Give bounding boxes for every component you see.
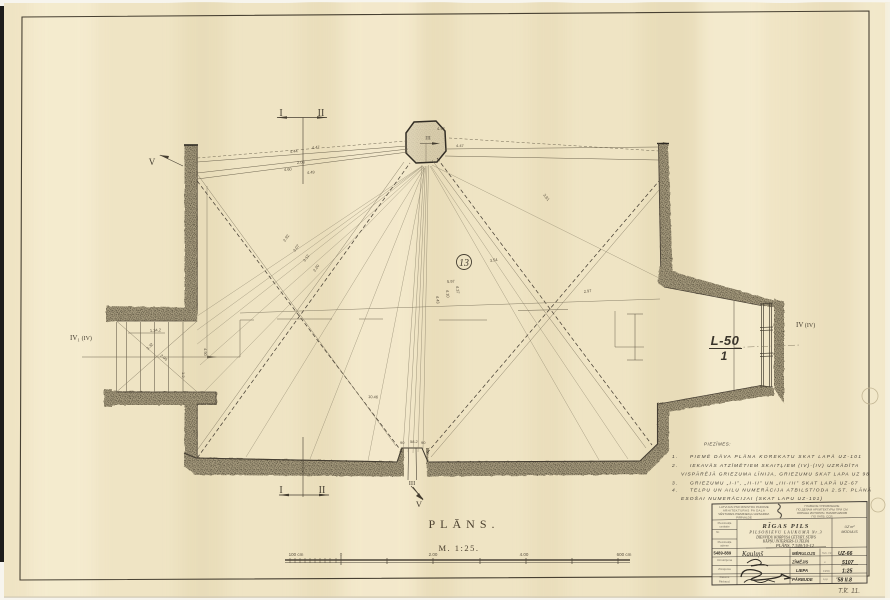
svg-text:4.49: 4.49 [307, 169, 316, 175]
svg-text:1.: 1. [672, 454, 678, 460]
svg-text:4.44: 4.44 [290, 148, 299, 154]
svg-text:uzskaite: uzskaite [719, 525, 730, 529]
svg-text:4.47: 4.47 [456, 143, 465, 148]
svg-text:M. 1:25.: M. 1:25. [438, 543, 479, 553]
svg-text:2.00: 2.00 [429, 552, 438, 557]
svg-text:58.2: 58.2 [410, 439, 419, 444]
svg-text:4.10: 4.10 [445, 290, 451, 299]
svg-text:’58 II.8: ’58 II.8 [836, 578, 852, 584]
svg-text:1: 1 [721, 349, 728, 363]
svg-text:5.97: 5.97 [447, 279, 456, 284]
svg-text:PĀRVALDE: PĀRVALDE [736, 516, 752, 520]
svg-text:GRIEZUMU „I-I”, „II-II” UN „II: GRIEZUMU „I-I”, „II-II” UN „III-III” SKA… [690, 480, 859, 487]
svg-text:UZ m²: UZ m² [845, 525, 856, 529]
svg-text:V: V [149, 157, 156, 167]
svg-text:MODULIS: MODULIS [841, 530, 858, 534]
svg-text:13: 13 [459, 258, 469, 269]
svg-text:MĒRULOJS: MĒRULOJS [792, 551, 815, 556]
svg-text:Nr.: Nr. [716, 530, 720, 534]
svg-text:Pārbaud.: Pārbaud. [719, 580, 731, 584]
svg-text:III: III [409, 480, 416, 487]
svg-text:L-50: L-50 [711, 333, 740, 348]
svg-text:I: I [279, 485, 282, 496]
svg-text:I: I [279, 108, 282, 119]
svg-text:4.47: 4.47 [312, 144, 321, 150]
svg-text:Teh. Nr: Teh. Nr [822, 551, 832, 555]
svg-text:90: 90 [421, 440, 426, 445]
svg-text:UZ-66: UZ-66 [838, 551, 853, 557]
svg-text:1:25: 1:25 [842, 569, 852, 575]
svg-text:100 cm: 100 cm [289, 552, 304, 557]
svg-text:1959: 1959 [823, 569, 830, 573]
svg-text:4.60: 4.60 [284, 166, 293, 172]
svg-text:V: V [416, 499, 423, 509]
svg-text:ESOŠAI NUMERĀCIJAI (SKAT LAPU: ESOŠAI NUMERĀCIJAI (SKAT LAPU UZ-101) [681, 495, 823, 502]
svg-text:5489-889: 5489-889 [714, 551, 732, 556]
svg-text:2.: 2. [671, 463, 678, 469]
svg-text:1.2: 1.2 [181, 372, 186, 378]
svg-text:Lpp: Lpp [823, 577, 828, 581]
svg-text:Zīmējuma: Zīmējuma [718, 567, 731, 571]
svg-text:VISPĀRĒJĀ GRIEZUMA LĪNIJA, GRI: VISPĀRĒJĀ GRIEZUMA LĪNIJA, GRIEZUMU SKAT… [681, 471, 870, 478]
svg-text:ПО ЛАТВ. ССР: ПО ЛАТВ. ССР [812, 515, 833, 519]
svg-text:PĀRBUDE: PĀRBUDE [792, 577, 813, 582]
svg-text:II: II [319, 485, 326, 496]
svg-text:4.: 4. [672, 488, 678, 494]
svg-text:3.: 3. [672, 481, 678, 487]
svg-text:90: 90 [400, 440, 405, 445]
svg-text:PLĀNS.: PLĀNS. [428, 517, 499, 531]
svg-text:III: III [425, 136, 431, 142]
svg-text:T.k̅. 11.: T.k̅. 11. [838, 588, 860, 595]
svg-text:ZĪMĒJIS: ZĪMĒJIS [791, 560, 808, 565]
svg-text:10.46: 10.46 [368, 394, 379, 400]
svg-text:adrese: adrese [720, 544, 729, 548]
svg-text:4.37: 4.37 [455, 286, 461, 295]
svg-text:IV (IV): IV (IV) [796, 321, 815, 329]
svg-text:II: II [318, 108, 325, 119]
svg-text:Kaulιņš: Kaulιņš [741, 551, 764, 558]
svg-text:4.43: 4.43 [437, 126, 446, 131]
svg-text:2.08: 2.08 [297, 159, 306, 165]
svg-text:v.: v. [824, 560, 826, 564]
svg-text:PILSOŅIEVU LAUKUMĀ Nr.3: PILSOŅIEVU LAUKUMĀ Nr.3 [748, 530, 822, 535]
svg-text:PIEZĪMES:: PIEZĪMES: [704, 442, 731, 447]
svg-text:PIEMĒ DĀVA PLĀNA KOREKATU SKAT: PIEMĒ DĀVA PLĀNA KOREKATU SKAT LAPĀ UZ-1… [690, 453, 862, 460]
svg-text:IEKAVĀS ATZĪMĒTIEM SKAITĻIEM (: IEKAVĀS ATZĪMĒTIEM SKAITĻIEM (IV)-(IV) U… [690, 462, 859, 469]
svg-text:LIEPA: LIEPA [796, 568, 808, 573]
svg-text:4.00: 4.00 [520, 552, 529, 557]
svg-text:Uzmērījuma: Uzmērījuma [717, 558, 733, 562]
svg-text:IV₁ (IV): IV₁ (IV) [70, 334, 92, 342]
svg-text:Datums: Datums [720, 575, 730, 579]
svg-text:TELPU UN AILU NUMERĀCIJA ATBIL: TELPU UN AILU NUMERĀCIJA ATBILST/ODA 2.S… [690, 487, 872, 494]
svg-text:4.43: 4.43 [435, 296, 441, 305]
svg-text:600 cm: 600 cm [617, 552, 632, 557]
svg-text:1.34,2: 1.34,2 [150, 327, 162, 333]
svg-text:4.90: 4.90 [203, 348, 208, 357]
